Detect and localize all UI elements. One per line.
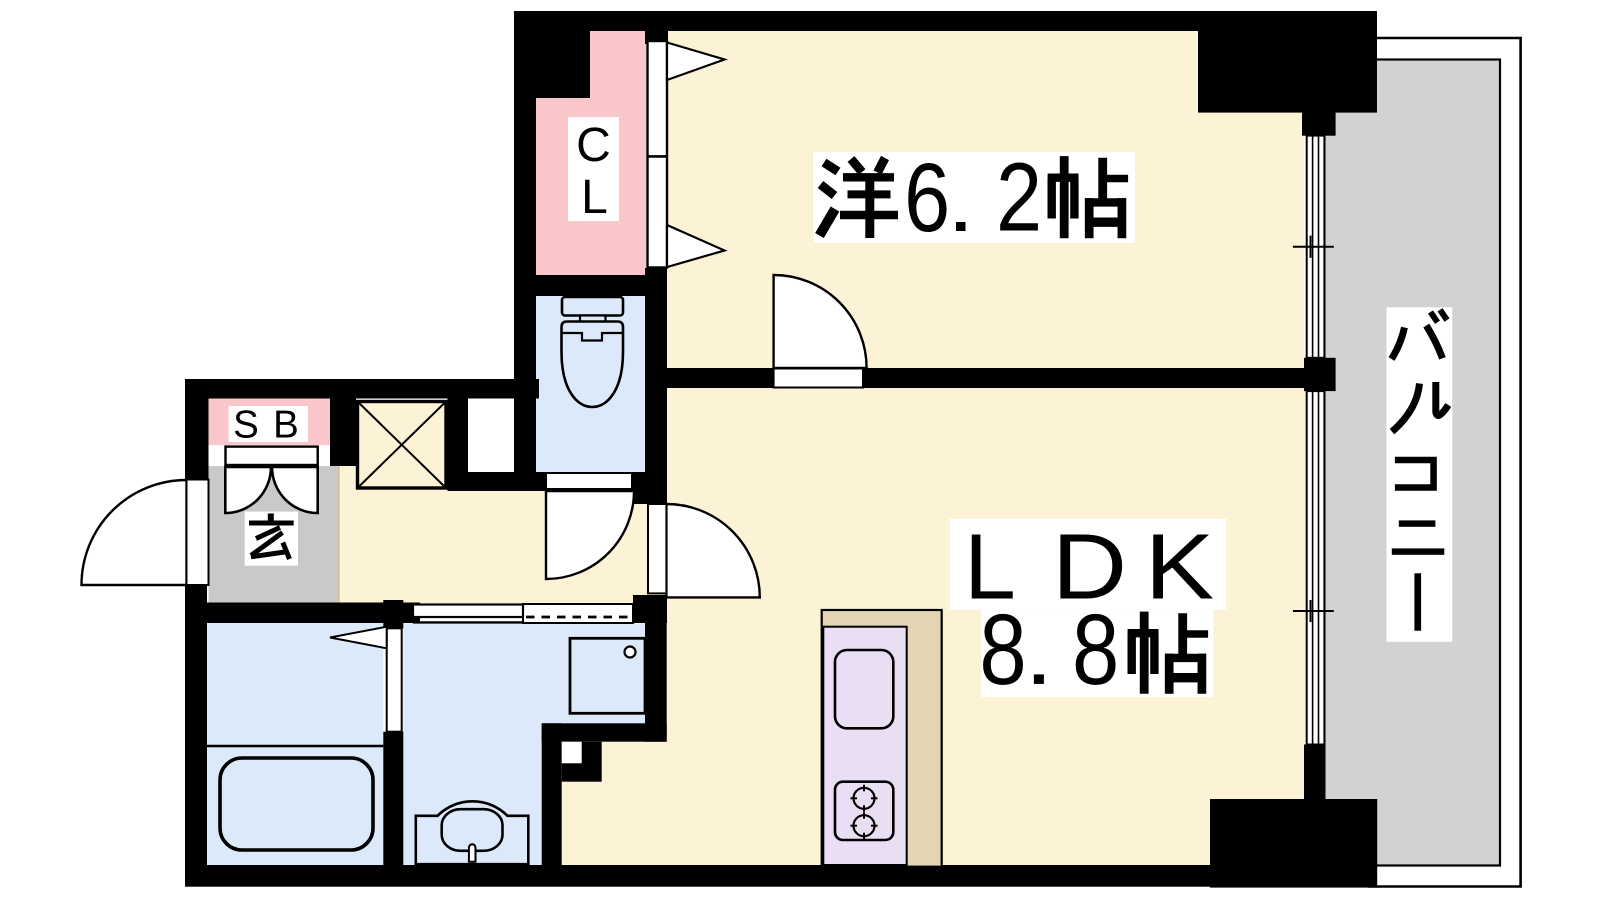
svg-text:L: L xyxy=(581,171,608,224)
svg-text:2: 2 xyxy=(996,143,1042,252)
svg-text:S: S xyxy=(233,404,259,447)
svg-text:C: C xyxy=(576,119,611,172)
svg-text:6: 6 xyxy=(904,144,950,253)
svg-text:8: 8 xyxy=(1072,593,1119,705)
svg-text:B: B xyxy=(273,404,299,447)
svg-text:8: 8 xyxy=(979,593,1026,705)
svg-text:K: K xyxy=(1145,515,1214,619)
